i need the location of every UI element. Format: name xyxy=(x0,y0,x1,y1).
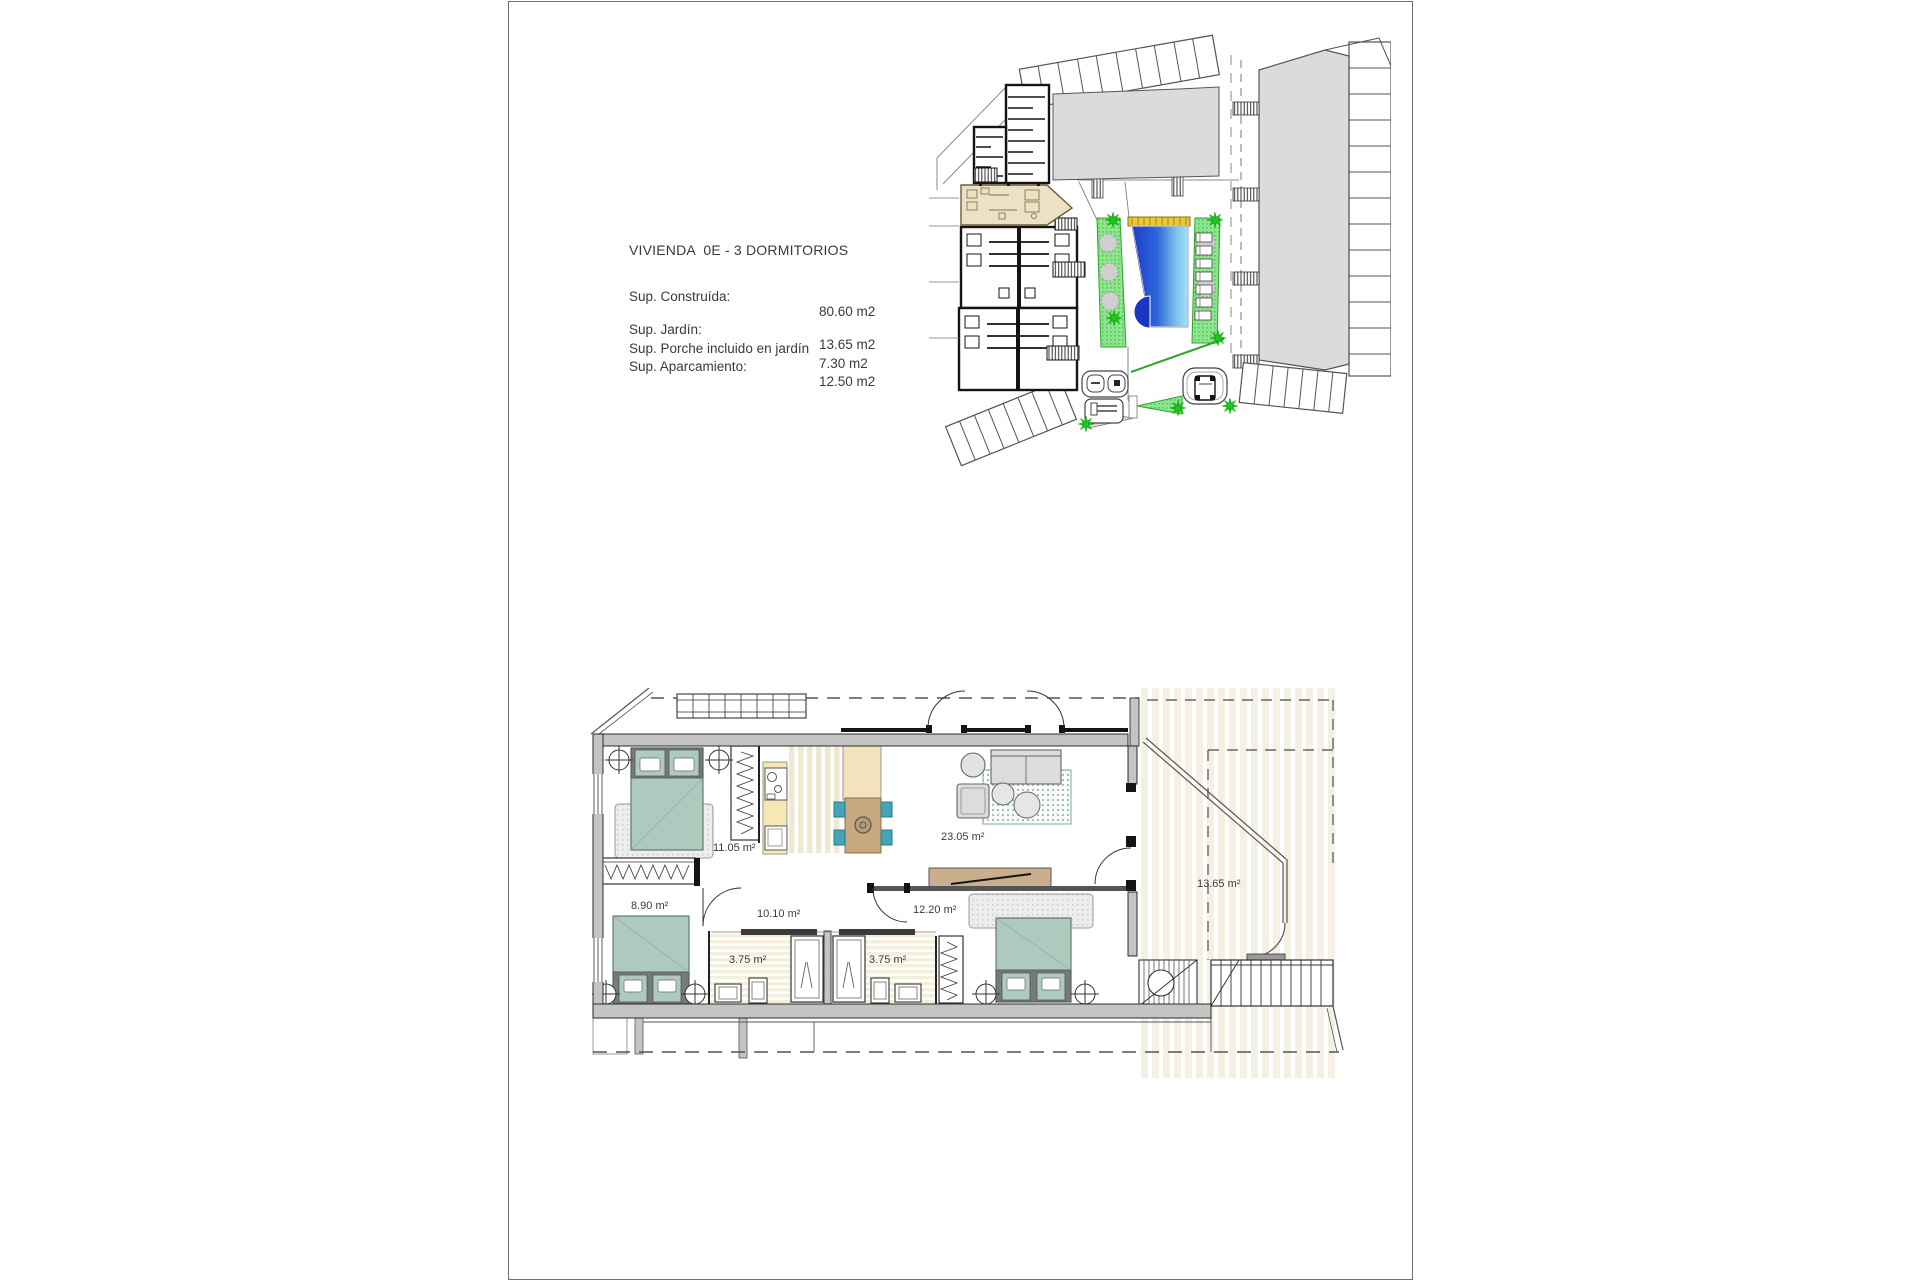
drawing-sheet: VIVIENDA 0E - 3 DORMITORIOS Sup. Constru… xyxy=(508,1,1413,1280)
info-label: Sup. Aparcamiento: xyxy=(629,359,747,374)
building-right xyxy=(1233,38,1391,376)
bedroom-1: 11.05 m² xyxy=(615,746,759,858)
bedroom3-area-label: 12.20 m² xyxy=(913,904,957,916)
car-parking xyxy=(1082,368,1227,423)
armchair xyxy=(957,784,989,818)
sideboard xyxy=(929,868,1051,888)
highlighted-unit xyxy=(961,183,1072,225)
info-value: 80.60 m2 xyxy=(819,304,875,319)
shower xyxy=(791,936,823,1002)
info-value: 13.65 m2 xyxy=(819,337,875,352)
shower xyxy=(833,936,865,1002)
info-value: 7.30 m2 xyxy=(819,356,868,371)
sun-loungers xyxy=(1195,233,1212,320)
parking-row-bottom-left xyxy=(946,380,1077,465)
unit-title: VIVIENDA 0E - 3 DORMITORIOS xyxy=(629,242,848,258)
bath2-area-label: 3.75 m² xyxy=(869,954,907,966)
floor-plan: 13.65 m² xyxy=(591,688,1353,1090)
bathroom-2: 3.75 m² xyxy=(831,934,936,1004)
parking-row-bottom-right xyxy=(1239,363,1347,414)
kitchen-island xyxy=(843,746,881,800)
living-area-label: 23.05 m² xyxy=(941,831,985,843)
living-room: 23.05 m² xyxy=(941,750,1071,843)
bedroom2-area-label: 8.90 m² xyxy=(631,900,669,912)
bedroom-2 xyxy=(613,916,689,1004)
bath1-area-label: 3.75 m² xyxy=(729,954,767,966)
building-top xyxy=(1053,87,1219,180)
site-plan xyxy=(929,30,1391,472)
garden-terrace: 13.65 m² xyxy=(1139,688,1343,1078)
unit-info-block: VIVIENDA 0E - 3 DORMITORIOS Sup. Constru… xyxy=(629,242,959,368)
info-label: Sup. Porche incluido en jardín xyxy=(629,341,809,356)
bedroom1-area-label: 11.05 m² xyxy=(713,842,756,854)
info-row: Sup. Aparcamiento: 12.50 m2 xyxy=(629,344,652,404)
hall-area-label: 10.10 m² xyxy=(757,908,801,920)
info-value: 12.50 m2 xyxy=(819,374,875,389)
info-label: Sup. Construída: xyxy=(629,289,730,304)
garden-area-label: 13.65 m² xyxy=(1197,878,1241,890)
wardrobe xyxy=(731,746,759,840)
bathroom-1: 3.75 m² xyxy=(709,934,824,1004)
side-table xyxy=(961,753,985,777)
